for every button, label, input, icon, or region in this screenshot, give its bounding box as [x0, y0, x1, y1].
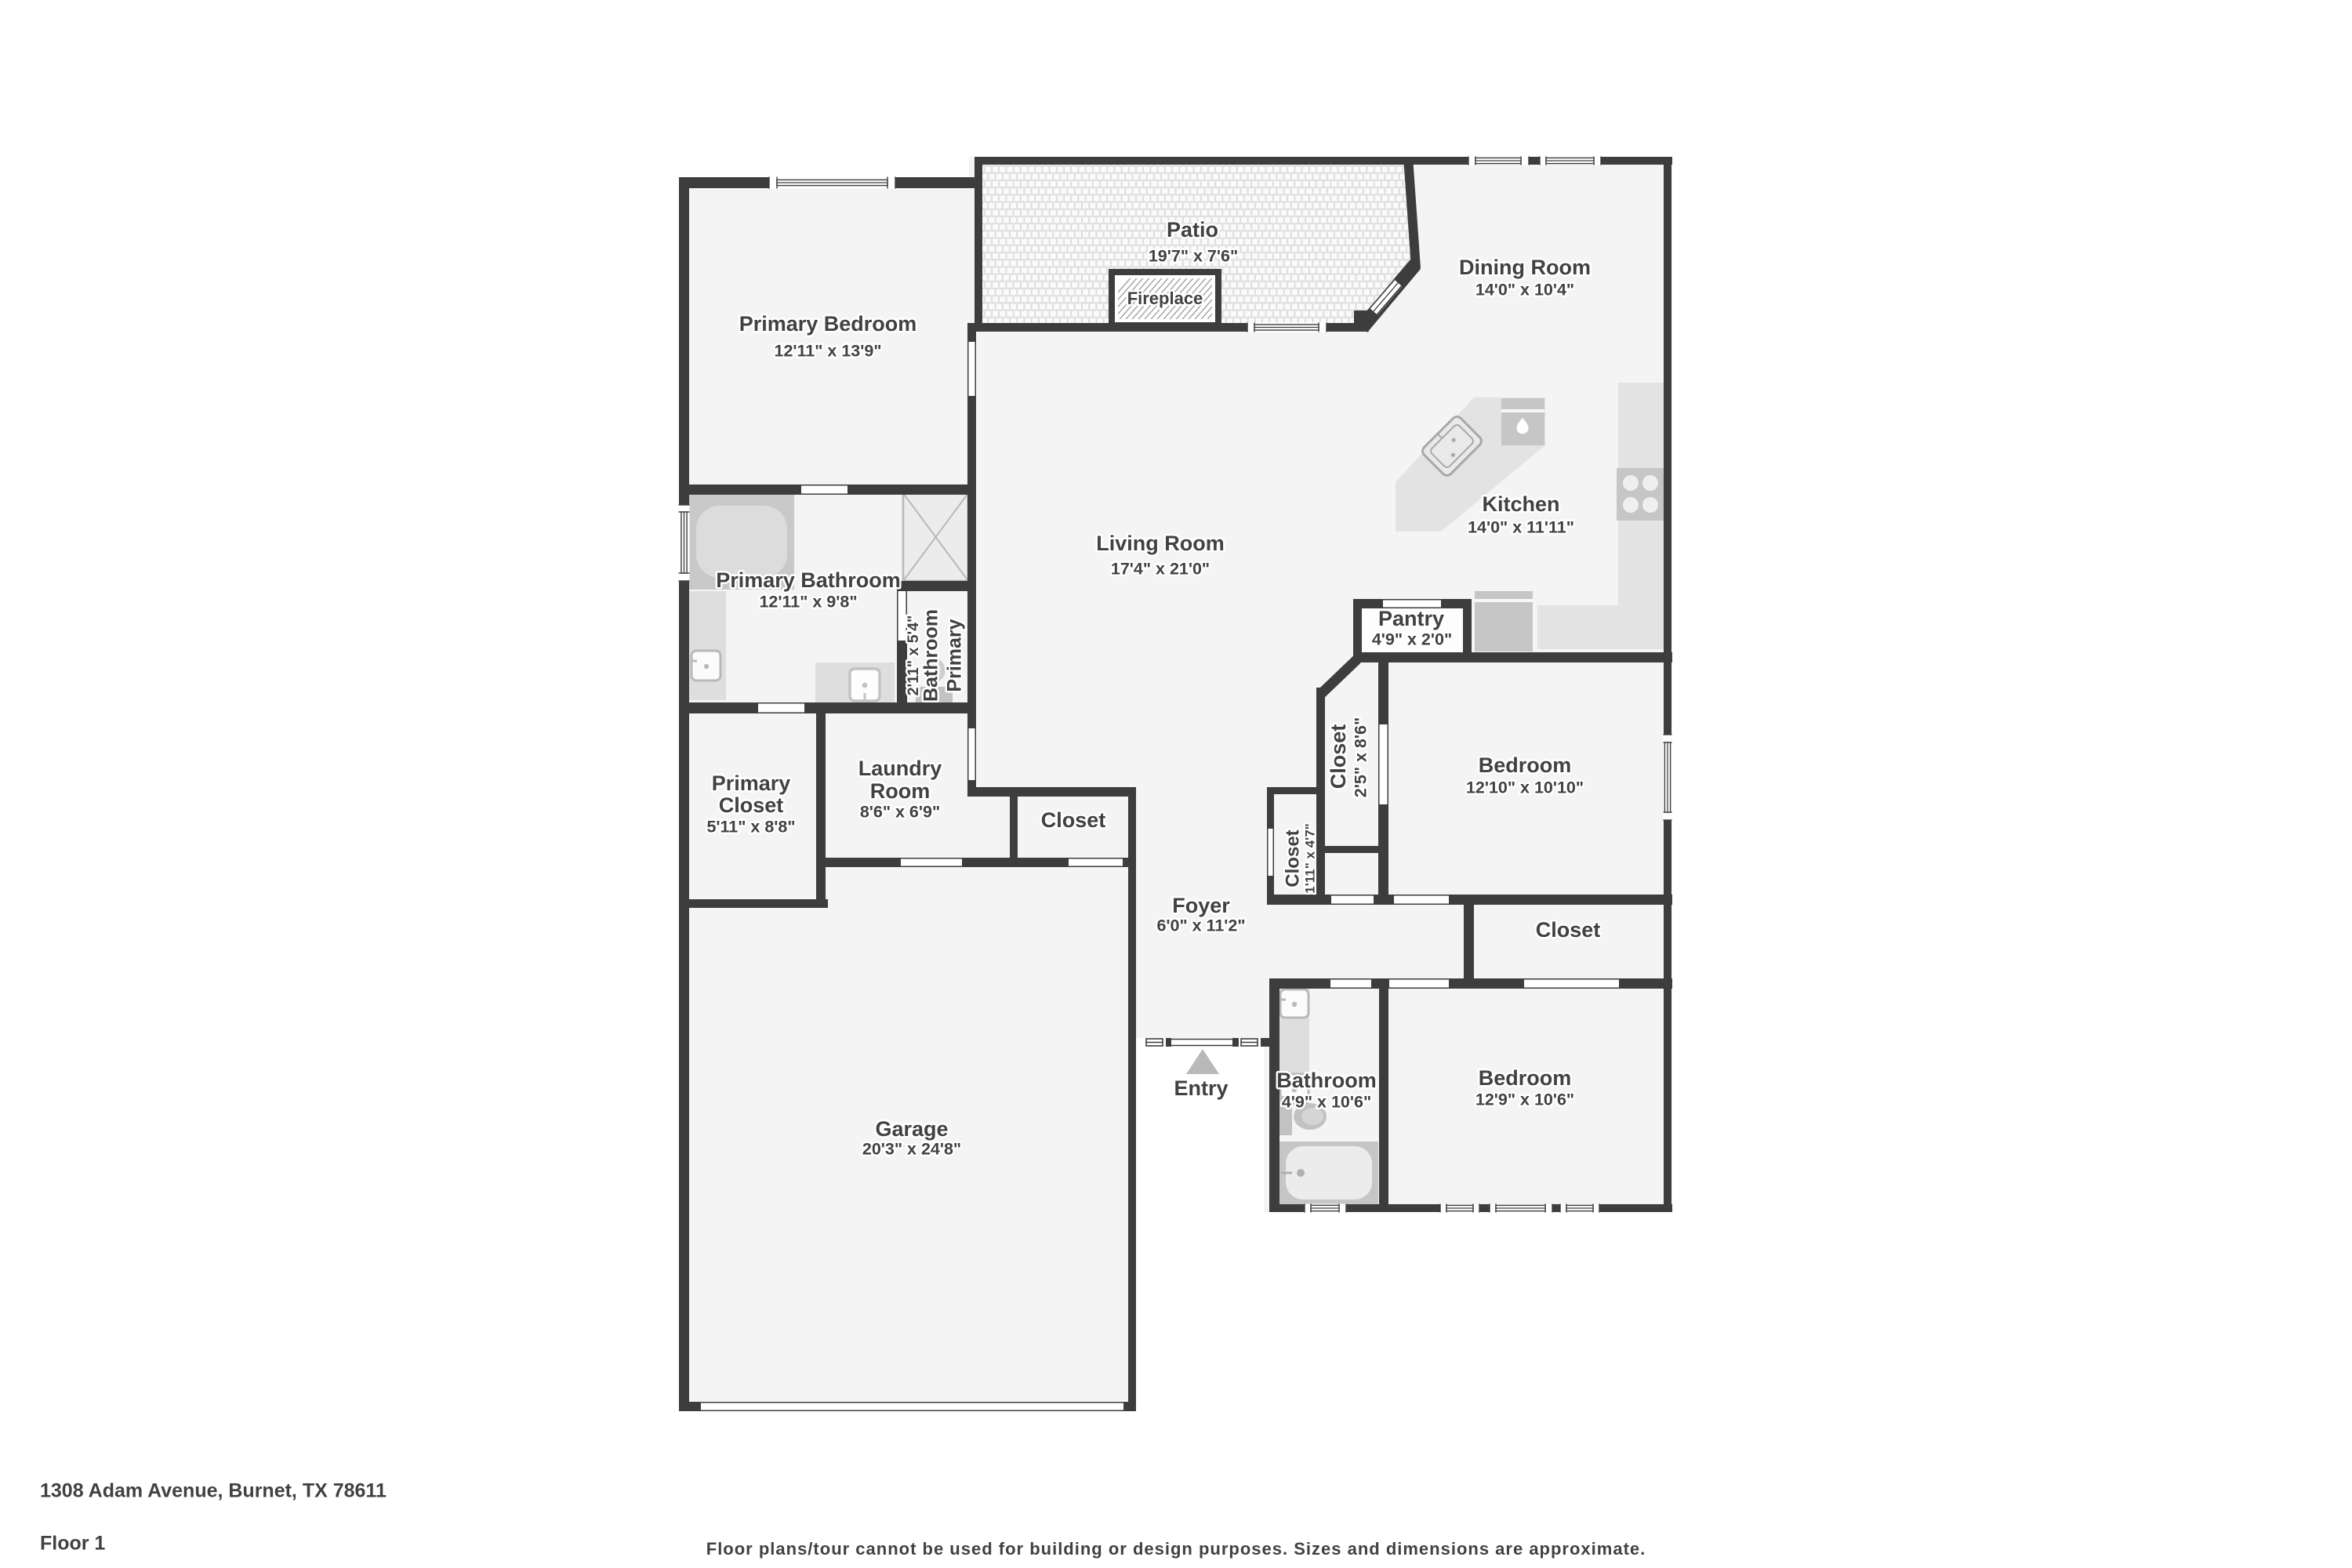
svg-text:Primary Bathroom: Primary Bathroom — [716, 568, 901, 592]
svg-text:Entry: Entry — [1174, 1076, 1228, 1100]
svg-text:Living Room: Living Room — [1096, 532, 1225, 555]
svg-text:12'11" x 13'9": 12'11" x 13'9" — [774, 342, 881, 361]
svg-text:20'3" x 24'8": 20'3" x 24'8" — [862, 1140, 961, 1159]
svg-text:Pantry: Pantry — [1378, 607, 1444, 630]
svg-text:5'11" x 8'8": 5'11" x 8'8" — [706, 818, 795, 837]
svg-text:4'9" x 10'6": 4'9" x 10'6" — [1282, 1093, 1371, 1112]
svg-text:Foyer: Foyer — [1172, 894, 1230, 917]
svg-text:Fireplace: Fireplace — [1127, 289, 1203, 308]
svg-text:Kitchen: Kitchen — [1482, 492, 1559, 516]
svg-text:Primary Bedroom: Primary Bedroom — [739, 312, 917, 336]
svg-text:17'4" x 21'0": 17'4" x 21'0" — [1111, 560, 1210, 579]
svg-text:4'9" x 2'0": 4'9" x 2'0" — [1372, 630, 1452, 649]
svg-text:Closet: Closet — [1282, 829, 1303, 887]
svg-text:Laundry: Laundry — [858, 757, 942, 780]
svg-text:2'5" x 8'6": 2'5" x 8'6" — [1352, 717, 1370, 797]
svg-text:Floor 1: Floor 1 — [40, 1533, 105, 1555]
svg-text:8'6" x 6'9": 8'6" x 6'9" — [860, 803, 940, 822]
svg-text:Garage: Garage — [875, 1117, 948, 1141]
svg-text:12'9" x 10'6": 12'9" x 10'6" — [1475, 1091, 1574, 1109]
svg-text:Room: Room — [870, 779, 931, 803]
svg-text:Floor plans/tour cannot be use: Floor plans/tour cannot be used for buil… — [706, 1539, 1646, 1559]
svg-text:19'7" x 7'6": 19'7" x 7'6" — [1149, 247, 1238, 266]
svg-text:1308 Adam Avenue, Burnet, TX 7: 1308 Adam Avenue, Burnet, TX 78611 — [40, 1480, 387, 1502]
svg-text:14'0" x 11'11": 14'0" x 11'11" — [1468, 518, 1574, 537]
svg-text:Patio: Patio — [1167, 218, 1218, 241]
svg-text:6'0" x 11'2": 6'0" x 11'2" — [1156, 916, 1245, 935]
svg-text:Bathroom: Bathroom — [920, 609, 942, 702]
svg-text:Bedroom: Bedroom — [1479, 1066, 1572, 1090]
svg-text:1'11" x 4'7": 1'11" x 4'7" — [1302, 823, 1317, 893]
svg-text:Bedroom: Bedroom — [1479, 753, 1572, 777]
svg-text:Primary: Primary — [944, 619, 966, 691]
svg-text:Closet: Closet — [1327, 724, 1350, 789]
svg-text:Dining Room: Dining Room — [1459, 256, 1591, 279]
svg-text:Closet: Closet — [1536, 918, 1601, 942]
svg-text:14'0" x 10'4": 14'0" x 10'4" — [1475, 281, 1574, 299]
svg-text:Primary: Primary — [712, 771, 791, 795]
svg-text:Bathroom: Bathroom — [1276, 1069, 1377, 1092]
svg-text:12'10" x 10'10": 12'10" x 10'10" — [1466, 779, 1584, 797]
svg-text:2'11" x 5'4": 2'11" x 5'4" — [905, 615, 922, 696]
svg-text:12'11" x 9'8": 12'11" x 9'8" — [759, 593, 857, 612]
svg-text:Closet: Closet — [1041, 808, 1106, 832]
svg-text:Closet: Closet — [719, 793, 784, 817]
